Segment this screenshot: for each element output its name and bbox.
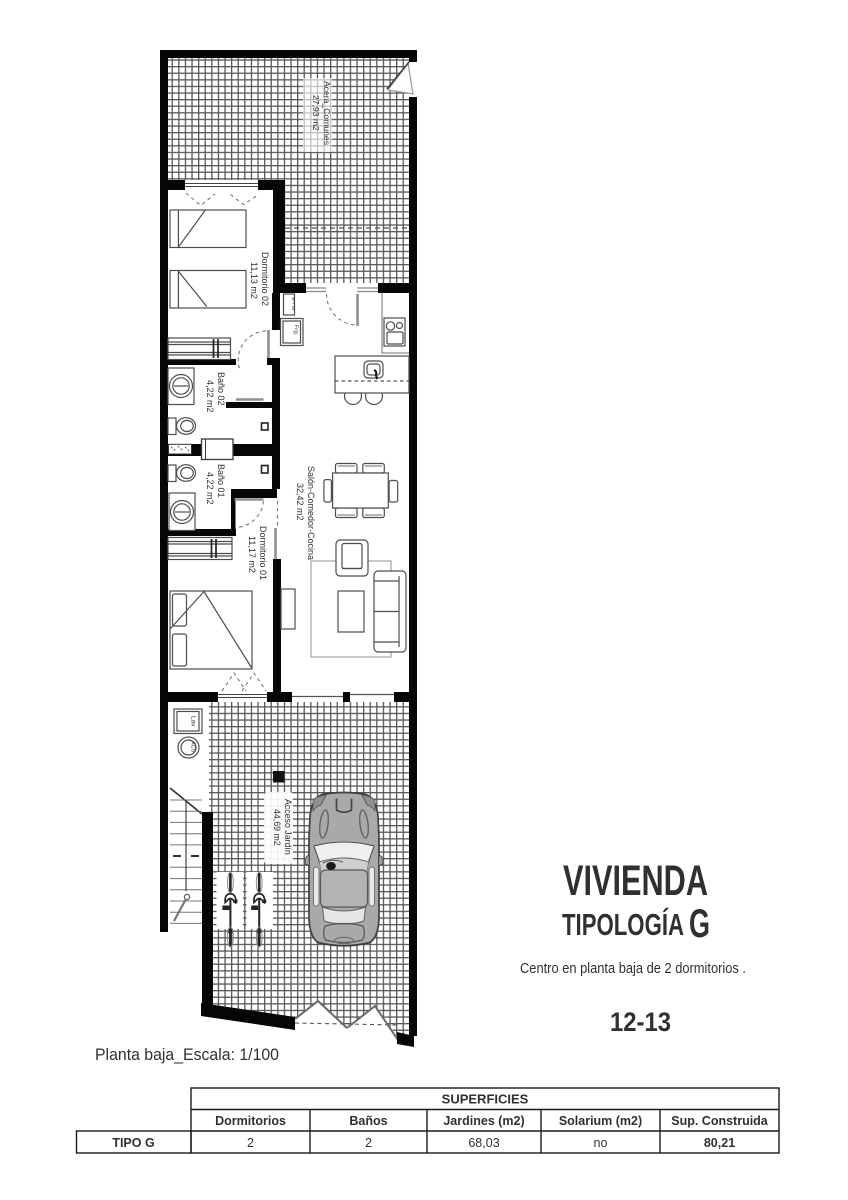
svg-text:4,22 m2: 4,22 m2 <box>205 380 215 413</box>
svg-text:ACS: ACS <box>190 741 196 753</box>
svg-text:Dormitorio 01: Dormitorio 01 <box>258 526 268 580</box>
svg-text:12-13: 12-13 <box>610 1007 671 1037</box>
svg-text:11,13 m2: 11,13 m2 <box>249 262 259 299</box>
svg-text:Baño 01: Baño 01 <box>216 464 226 498</box>
svg-text:Baño 02: Baño 02 <box>216 372 226 406</box>
svg-text:2: 2 <box>247 1136 254 1150</box>
svg-text:4,22 m2: 4,22 m2 <box>205 472 215 505</box>
svg-text:TIPOLOGÍA: TIPOLOGÍA <box>562 907 684 942</box>
svg-text:Lav: Lav <box>190 716 197 727</box>
svg-text:44,69 m2: 44,69 m2 <box>272 809 282 846</box>
svg-text:Solarium (m2): Solarium (m2) <box>559 1114 642 1128</box>
svg-text:Jardines (m2): Jardines (m2) <box>443 1114 524 1128</box>
svg-text:2: 2 <box>365 1136 372 1150</box>
svg-text:Salón-Comedor-Cocina: Salón-Comedor-Cocina <box>306 466 316 560</box>
svg-text:M + W: M + W <box>291 297 296 311</box>
svg-text:Planta baja_Escala: 1/100: Planta baja_Escala: 1/100 <box>95 1045 279 1064</box>
svg-text:Dormitorio 02: Dormitorio 02 <box>260 252 270 306</box>
svg-text:TIPO G: TIPO G <box>112 1136 154 1150</box>
svg-text:Dormitorios: Dormitorios <box>215 1114 286 1128</box>
svg-text:Frig.: Frig. <box>293 325 299 335</box>
svg-text:68,03: 68,03 <box>468 1136 499 1150</box>
svg-text:VIVIENDA: VIVIENDA <box>563 857 708 905</box>
svg-text:32,42 m2: 32,42 m2 <box>295 483 305 521</box>
svg-text:80,21: 80,21 <box>704 1136 735 1150</box>
svg-text:SUPERFICIES: SUPERFICIES <box>442 1092 529 1107</box>
svg-text:Acera_Comunes: Acera_Comunes <box>322 81 332 145</box>
svg-text:Sup. Construida: Sup. Construida <box>671 1114 769 1128</box>
svg-text:Centro en planta baja de 2 dor: Centro en planta baja de 2 dormitorios . <box>520 960 746 977</box>
svg-text:G: G <box>689 902 710 946</box>
svg-text:no: no <box>594 1136 608 1150</box>
svg-text:11,17 m2: 11,17 m2 <box>247 536 257 573</box>
svg-text:27,93 m2: 27,93 m2 <box>311 95 321 131</box>
svg-text:Baños: Baños <box>349 1114 387 1128</box>
svg-text:Acceso Jardín: Acceso Jardín <box>283 799 293 855</box>
